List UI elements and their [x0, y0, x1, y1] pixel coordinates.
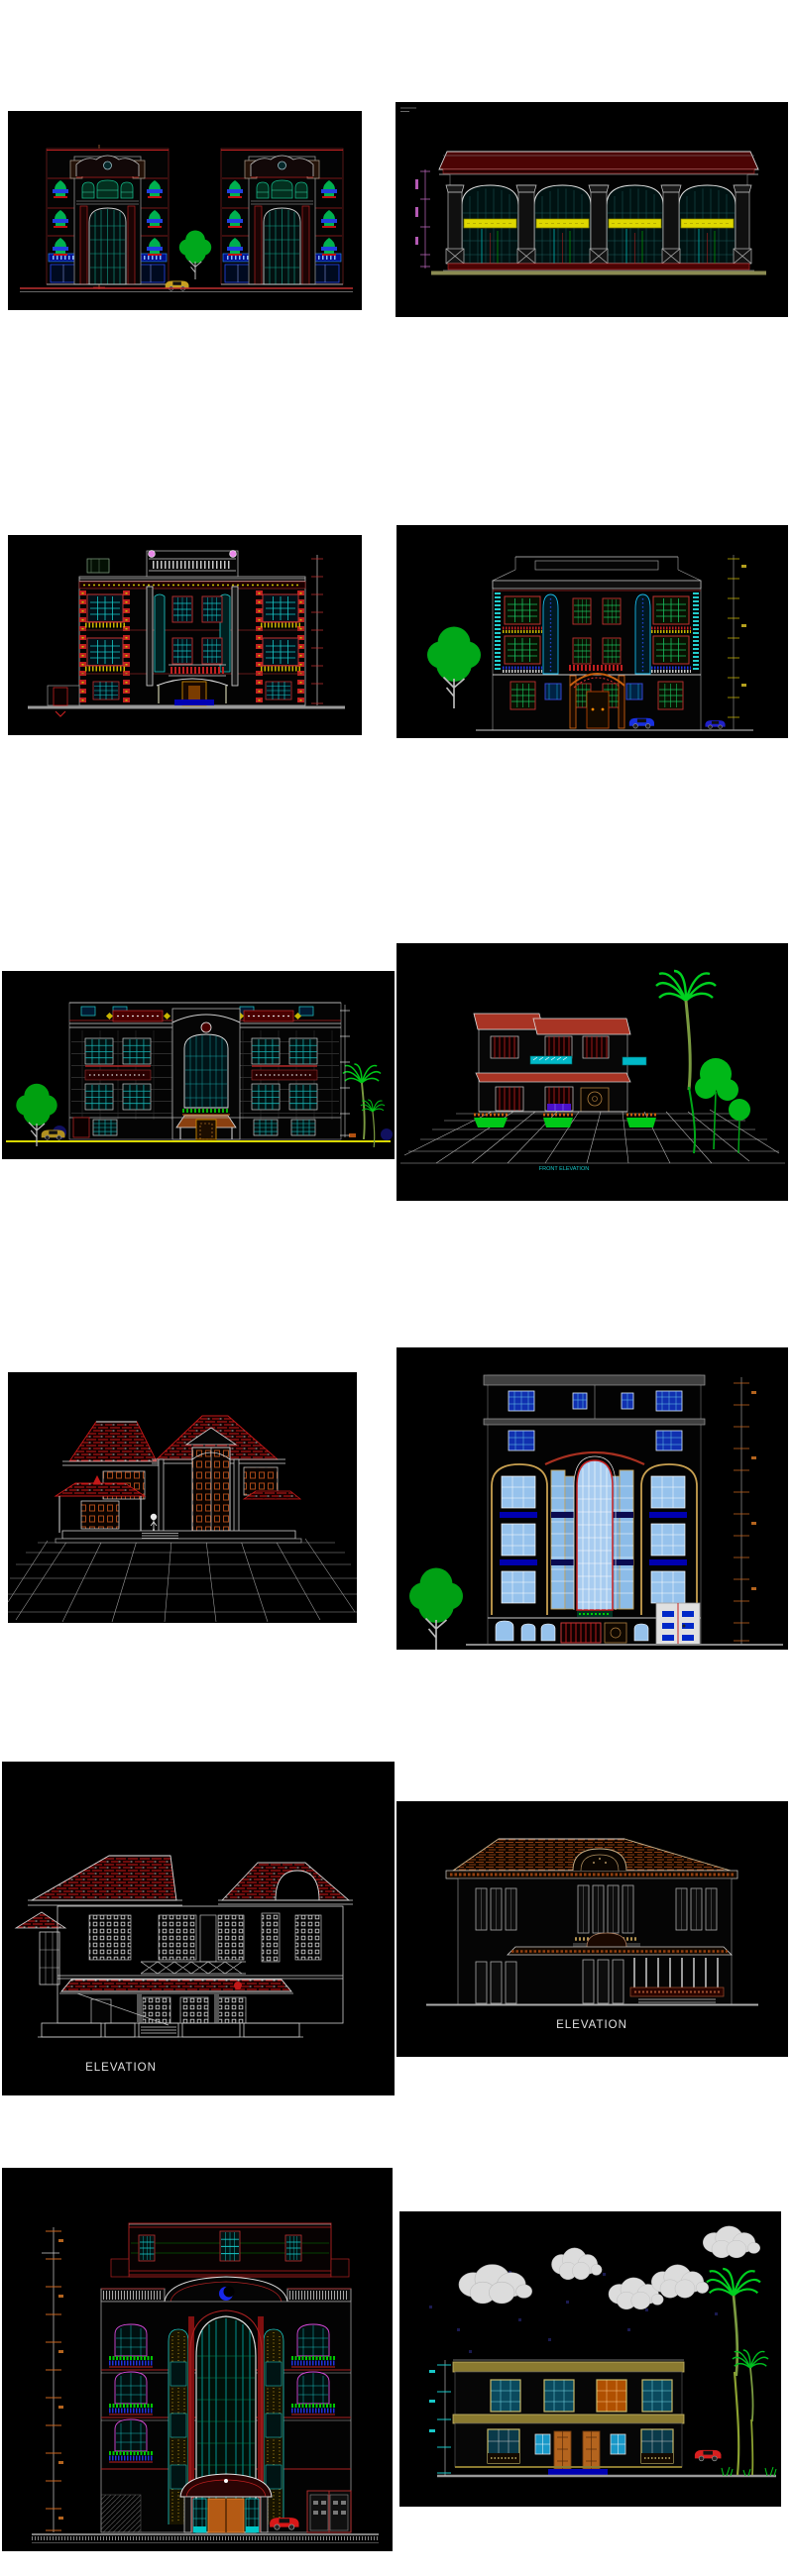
cad-elevation-gallery: FRONT ELEVATION: [0, 0, 793, 2576]
panel-apartment-tower[interactable]: [396, 1347, 788, 1650]
violet-boxes: [547, 1104, 571, 1111]
panel-villa-clouds-palms[interactable]: [399, 2211, 781, 2507]
dimension-line: [429, 2360, 451, 2476]
cornice: [484, 1375, 705, 1385]
palm-tree: [343, 1064, 381, 1139]
panel-perspective-villa[interactable]: FRONT ELEVATION: [396, 943, 788, 1201]
panel-wide-mansion[interactable]: [2, 971, 395, 1159]
tree: [427, 627, 481, 709]
panel-residential-tower[interactable]: [2, 2168, 393, 2551]
panel-arched-warehouse[interactable]: [396, 102, 788, 317]
ornate-door: [581, 1088, 609, 1112]
panel-villa-rear-elevation[interactable]: [396, 525, 788, 738]
small-roof: [16, 1912, 65, 1928]
planters: [474, 1115, 656, 1127]
lamp: [230, 551, 237, 558]
tree: [409, 1568, 463, 1651]
canopy-roof: [61, 1980, 291, 1991]
dimension-line: [728, 555, 746, 730]
entrance-door: [196, 1120, 216, 1139]
round-tree: [729, 1099, 750, 1153]
main-roof: [32, 1856, 176, 1900]
x-brace-rail: [141, 1962, 246, 1974]
panel-red-roof-house[interactable]: [8, 1372, 357, 1623]
bush: [381, 1128, 393, 1140]
cornice: [439, 152, 758, 169]
classical-villa-front-drawing: [8, 535, 362, 735]
door-mat: [174, 699, 214, 705]
lower-windows: [91, 1997, 246, 2023]
panel-twin-retail-building[interactable]: [8, 111, 362, 310]
residential-tower-drawing: [2, 2168, 393, 2551]
villa-clouds-palms-drawing: [399, 2211, 781, 2507]
wide-mansion-drawing: [2, 971, 395, 1159]
upper-windows: [476, 1885, 717, 1933]
dimension-line: [734, 1377, 756, 1645]
red-roof-house-drawing: [8, 1372, 357, 1623]
panel-caption: ELEVATION: [556, 2019, 627, 2031]
center-window: [574, 1456, 616, 1610]
car: [705, 720, 725, 728]
clouds: [459, 2226, 760, 2309]
panel-caption: ELEVATION: [85, 2062, 157, 2074]
panel-hip-roof-villa[interactable]: ELEVATION: [396, 1801, 788, 2057]
building-right: [221, 149, 343, 284]
apartment-tower-drawing: [396, 1347, 788, 1650]
entrance: [180, 2474, 272, 2532]
car: [695, 2450, 722, 2461]
banner: [623, 1057, 646, 1065]
panel-classical-villa-front[interactable]: [8, 535, 362, 735]
perspective-villa-drawing: FRONT ELEVATION: [396, 943, 788, 1201]
mid-roof: [476, 1073, 630, 1082]
crescent-ornament: [224, 2287, 235, 2298]
twin-retail-building-drawing: [8, 111, 362, 310]
roof: [69, 1422, 157, 1461]
floor-grid: [8, 1539, 357, 1622]
dimension-line: [42, 2227, 63, 2532]
entry-gate: [561, 1623, 601, 1643]
house-line-elevation-drawing: ELEVATION: [2, 1762, 395, 2095]
animal: [349, 1133, 356, 1137]
penthouse: [111, 2223, 349, 2277]
tree: [179, 231, 211, 280]
upper-windows: [491, 1036, 609, 1058]
panel-house-line-elevation[interactable]: ELEVATION: [2, 1762, 395, 2095]
upper-windows: [89, 1913, 321, 1962]
plinth: [38, 2023, 303, 2037]
panel-caption: FRONT ELEVATION: [539, 1166, 589, 1172]
dimension-line: [311, 555, 323, 705]
floor-grid: [400, 1110, 785, 1163]
cornice: [453, 2362, 684, 2372]
center-tower: [172, 1009, 240, 1139]
dimension-line: [415, 169, 430, 268]
roof-slab: [533, 1019, 630, 1034]
hip-roof-villa-drawing: ELEVATION: [396, 1801, 788, 2057]
lamp: [149, 551, 156, 558]
villa-rear-elevation-drawing: [396, 525, 788, 738]
car: [166, 281, 189, 291]
arched-warehouse-drawing: [396, 102, 788, 317]
grass: [722, 2467, 776, 2476]
building: [453, 2360, 684, 2476]
roof-slab: [474, 1014, 543, 1029]
building-left: [47, 149, 169, 284]
entrance-door: [656, 1603, 700, 1645]
garage-doors: [307, 2491, 351, 2532]
